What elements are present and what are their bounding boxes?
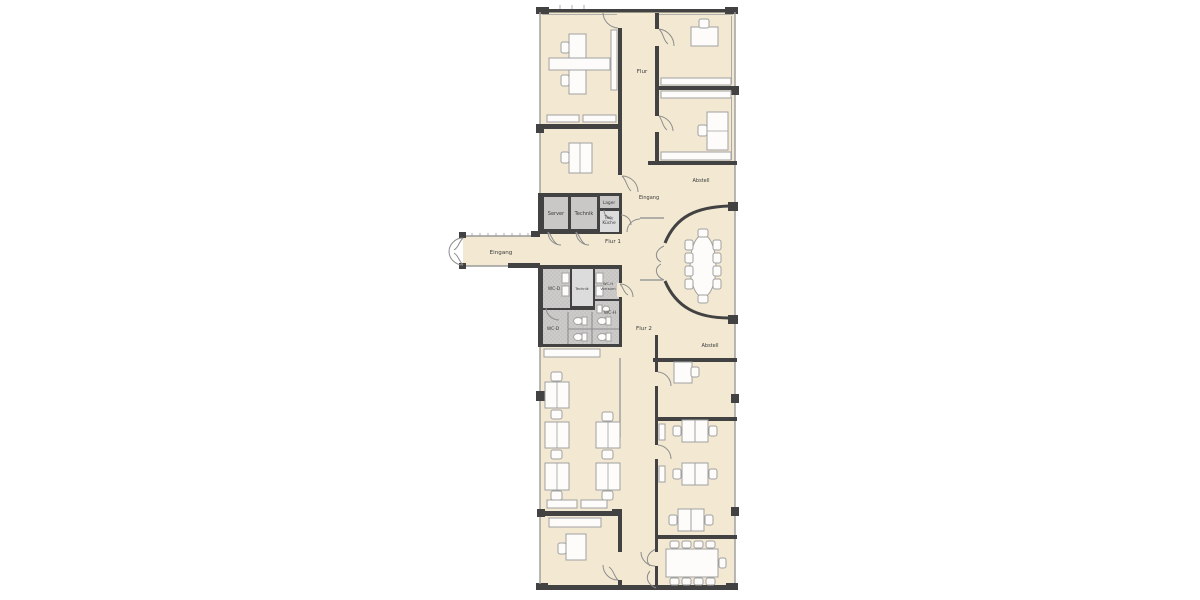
- toilet: [598, 317, 612, 325]
- conference-table: [666, 549, 718, 577]
- chair: [709, 426, 717, 436]
- office-divider-wall-west: [538, 124, 622, 129]
- chair: [709, 469, 717, 479]
- cabinet: [611, 30, 617, 90]
- meeting-table: [549, 58, 610, 70]
- chair: [682, 541, 691, 548]
- label-lager: Lager: [603, 200, 616, 206]
- label-technik: Technik: [574, 211, 594, 217]
- cabinet: [583, 115, 616, 122]
- desk: [566, 534, 586, 560]
- wall-block: [612, 509, 622, 516]
- corridor-west-wall-upper: [618, 28, 622, 124]
- sink: [562, 286, 569, 296]
- toilet: [598, 333, 612, 341]
- chair: [670, 541, 679, 548]
- sink: [596, 273, 603, 283]
- label-flur: Flur: [637, 69, 648, 75]
- cabinet: [659, 466, 665, 482]
- chair: [673, 426, 681, 436]
- cabinet: [661, 78, 731, 85]
- cabinet: [544, 349, 600, 357]
- chair: [691, 367, 699, 377]
- floor-plan-canvas: Flur Abstell Eingang Server Technik Lage…: [0, 0, 1200, 600]
- corner-pillar-se: [726, 583, 738, 590]
- desk: [691, 27, 718, 46]
- corridor-east-wall-d: [655, 335, 658, 372]
- cabinet: [547, 500, 577, 508]
- chair: [685, 240, 693, 250]
- chair: [705, 515, 713, 525]
- sw-office-east-wall-a: [618, 515, 622, 552]
- label-wc-h-vorraum-2: Vorraum: [600, 287, 616, 291]
- chair: [551, 410, 562, 419]
- label-wc-h-vorraum-1: WC-H: [603, 282, 613, 286]
- chair: [713, 253, 721, 263]
- chair: [685, 279, 693, 289]
- chair: [558, 543, 566, 554]
- toilet: [574, 317, 588, 325]
- chair: [670, 578, 679, 585]
- chair: [561, 75, 569, 86]
- corner-pillar-nw: [536, 7, 549, 14]
- chair: [682, 578, 691, 585]
- entrance-double-door: [449, 238, 463, 265]
- chair: [669, 515, 677, 525]
- chair: [551, 491, 562, 500]
- chair: [706, 541, 715, 548]
- toilet: [574, 333, 588, 341]
- chair: [694, 541, 703, 548]
- corridor-east-wall-a: [655, 13, 659, 29]
- south-wall: [538, 585, 737, 590]
- chair: [602, 491, 613, 500]
- label-flur1: Flur 1: [605, 239, 621, 245]
- corridor-west-wall-lower: [618, 129, 622, 175]
- cabinet: [549, 518, 601, 527]
- chair: [685, 266, 693, 276]
- corridor-east-wall-g: [655, 566, 658, 585]
- chair: [713, 240, 721, 250]
- chair: [713, 279, 721, 289]
- chair: [561, 42, 569, 53]
- desk: [674, 362, 692, 383]
- east-pillar-2: [728, 202, 738, 211]
- label-flur2: Flur 2: [636, 326, 652, 332]
- chair: [698, 229, 708, 237]
- cabinet: [581, 500, 607, 508]
- floor-plan: Flur Abstell Eingang Server Technik Lage…: [0, 0, 1200, 600]
- east-pillar-4: [731, 394, 739, 403]
- label-wc-d-top: WC-D: [548, 286, 561, 292]
- conference-table: [690, 235, 716, 297]
- corner-pillar-ne: [725, 7, 738, 14]
- chair: [561, 152, 569, 163]
- label-wc-h: WC-H: [604, 310, 616, 316]
- se-wall-1: [653, 358, 737, 362]
- label-technik-small: Technik: [574, 287, 589, 291]
- chair: [694, 578, 703, 585]
- corridor-east-wall-e: [655, 386, 658, 445]
- chair: [698, 295, 708, 303]
- chair: [699, 19, 709, 28]
- chair: [551, 450, 562, 459]
- chair: [706, 578, 715, 585]
- east-pillar-5: [731, 507, 739, 516]
- label-eingang-left: Eingang: [490, 250, 513, 256]
- vestibule-wall-segment: [508, 263, 540, 268]
- sw-office-north-wall: [538, 511, 620, 516]
- sink: [562, 273, 569, 283]
- corner-pillar-sw: [536, 583, 548, 590]
- se-wall-3: [656, 535, 737, 539]
- label-teekueche-2: Küche: [602, 220, 616, 226]
- vestibule-pillar-nw: [459, 232, 466, 238]
- chair: [698, 125, 707, 136]
- chair: [685, 253, 693, 263]
- vestibule-pillar-ne: [531, 231, 540, 237]
- chair: [602, 412, 613, 421]
- cabinet: [547, 115, 579, 122]
- label-abstell-bottom: Abstell: [701, 343, 718, 349]
- chair: [551, 372, 562, 381]
- cabinet: [659, 424, 665, 440]
- chair: [719, 558, 726, 568]
- label-abstell-top: Abstell: [692, 178, 709, 184]
- corridor-east-wall-b: [655, 46, 659, 116]
- cabinet: [661, 91, 731, 98]
- chair: [673, 469, 681, 479]
- north-wall: [538, 9, 737, 13]
- west-pillar-2: [536, 391, 545, 401]
- chair: [602, 450, 613, 459]
- office-divider-wall-east: [656, 86, 737, 90]
- label-wc-d-bottom: WC-D: [547, 326, 560, 332]
- wc-block: [538, 265, 633, 347]
- label-server: Server: [548, 211, 565, 217]
- corridor-east-wall-c: [655, 132, 659, 163]
- east-pillar-3: [728, 315, 738, 324]
- office-end-wall-east: [648, 161, 737, 165]
- chair: [713, 266, 721, 276]
- label-eingang-right: Eingang: [639, 195, 659, 201]
- sw-office-east-wall-b: [618, 580, 622, 586]
- cabinet: [661, 152, 731, 160]
- desk: [569, 143, 592, 173]
